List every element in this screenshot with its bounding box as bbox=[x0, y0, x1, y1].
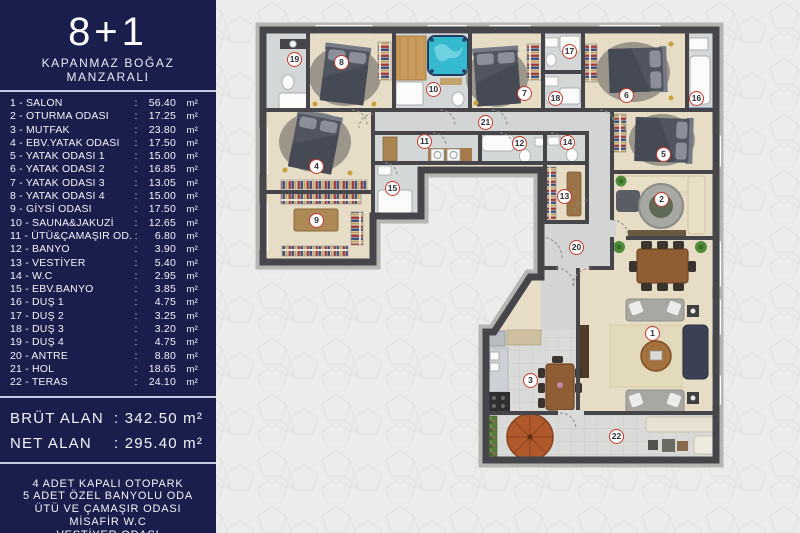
legend-area-value: 8.80 bbox=[140, 350, 176, 362]
legend-area-unit: m² bbox=[176, 271, 206, 283]
feature-text: ÜTÜ VE ÇAMAŞIR ODASI bbox=[35, 503, 182, 515]
legend-area-unit: m² bbox=[176, 258, 206, 270]
legend-row: 14 - W.C : 2.95 m² bbox=[10, 270, 206, 283]
legend-row: 2 - OTURMA ODASI : 17.25 m² bbox=[10, 110, 206, 123]
legend-area-value: 4.75 bbox=[140, 336, 176, 348]
legend-area-unit: m² bbox=[176, 138, 206, 150]
legend-colon: : bbox=[132, 296, 140, 308]
legend-row: 19 - DUŞ 4 : 4.75 m² bbox=[10, 336, 206, 349]
legend-area-unit: m² bbox=[176, 364, 206, 376]
legend-area-unit: m² bbox=[176, 337, 206, 349]
feature-text: 5 ADET ÖZEL BANYOLU ODA bbox=[23, 490, 193, 502]
legend-room-label: 18 - DUŞ 3 bbox=[10, 323, 132, 335]
legend-area-unit: m² bbox=[176, 297, 206, 309]
legend-area-unit: m² bbox=[176, 111, 206, 123]
legend-area-unit: m² bbox=[176, 204, 206, 216]
area-totals: BRÜT ALAN : 342.50 m² NET ALAN : 295.40 … bbox=[0, 398, 216, 456]
legend-colon: : bbox=[132, 137, 140, 149]
room-legend: 1 - SALON : 56.40 m² 2 - OTURMA ODASI : … bbox=[0, 92, 216, 390]
legend-colon: : bbox=[132, 203, 140, 215]
legend-colon: : bbox=[132, 283, 140, 295]
legend-colon: : bbox=[132, 217, 140, 229]
legend-colon: : bbox=[132, 270, 140, 282]
legend-colon: : bbox=[132, 177, 140, 189]
legend-room-label: 1 - SALON bbox=[10, 97, 132, 109]
legend-room-label: 14 - W.C bbox=[10, 270, 132, 282]
legend-area-value: 13.05 bbox=[140, 177, 176, 189]
legend-area-unit: m² bbox=[176, 125, 206, 137]
features-list: 4 ADET KAPALI OTOPARK 5 ADET ÖZEL BANYOL… bbox=[0, 478, 216, 533]
legend-area-unit: m² bbox=[176, 151, 206, 163]
feature-line: 5 ADET ÖZEL BANYOLU ODA bbox=[0, 490, 216, 503]
legend-colon: : bbox=[132, 323, 140, 335]
legend-row: 17 - DUŞ 2 : 3.25 m² bbox=[10, 310, 206, 323]
legend-row: 18 - DUŞ 3 : 3.20 m² bbox=[10, 323, 206, 336]
legend-row: 11 - ÜTÜ&ÇAMAŞIR OD. : 6.80 m² bbox=[10, 230, 206, 243]
feature-line: VESTİYER ODASI bbox=[0, 529, 216, 533]
legend-room-label: 10 - SAUNA&JAKUZİ bbox=[10, 217, 132, 229]
legend-area-unit: m² bbox=[176, 218, 206, 230]
legend-area-value: 15.00 bbox=[140, 150, 176, 162]
legend-area-unit: m² bbox=[176, 164, 206, 176]
brut-alan-label: BRÜT ALAN bbox=[10, 406, 114, 431]
net-alan-label: NET ALAN bbox=[10, 431, 114, 456]
legend-colon: : bbox=[132, 363, 140, 375]
legend-row: 4 - EBV.YATAK ODASI : 17.50 m² bbox=[10, 137, 206, 150]
legend-area-value: 17.50 bbox=[140, 203, 176, 215]
legend-room-label: 11 - ÜTÜ&ÇAMAŞIR OD. bbox=[10, 230, 132, 242]
legend-row: 5 - YATAK ODASI 1 : 15.00 m² bbox=[10, 150, 206, 163]
legend-area-value: 17.25 bbox=[140, 110, 176, 122]
legend-area-value: 18.65 bbox=[140, 363, 176, 375]
feature-line: MİSAFİR W.C bbox=[0, 516, 216, 529]
legend-colon: : bbox=[132, 230, 140, 242]
legend-area-value: 3.25 bbox=[140, 310, 176, 322]
legend-area-value: 3.20 bbox=[140, 323, 176, 335]
floor-antre bbox=[541, 222, 612, 268]
legend-room-label: 13 - VESTİYER bbox=[10, 257, 132, 269]
legend-area-value: 56.40 bbox=[140, 97, 176, 109]
feature-text: 4 ADET KAPALI OTOPARK bbox=[32, 478, 183, 490]
separator bbox=[0, 462, 216, 464]
legend-colon: : bbox=[132, 150, 140, 162]
legend-colon: : bbox=[132, 163, 140, 175]
legend-row: 12 - BANYO : 3.90 m² bbox=[10, 243, 206, 256]
legend-area-unit: m² bbox=[176, 377, 206, 389]
feature-line: 4 ADET KAPALI OTOPARK bbox=[0, 478, 216, 491]
legend-area-value: 4.75 bbox=[140, 296, 176, 308]
legend-row: 22 - TERAS : 24.10 m² bbox=[10, 376, 206, 389]
legend-area-value: 2.95 bbox=[140, 270, 176, 282]
legend-row: 15 - EBV.BANYO : 3.85 m² bbox=[10, 283, 206, 296]
legend-room-label: 15 - EBV.BANYO bbox=[10, 283, 132, 295]
legend-colon: : bbox=[132, 336, 140, 348]
legend-area-unit: m² bbox=[176, 284, 206, 296]
legend-room-label: 9 - GİYSİ ODASI bbox=[10, 203, 132, 215]
plan-subtitle: KAPANMAZ BOĞAZ MANZARALI bbox=[0, 56, 216, 84]
floor-kitchen-corridor bbox=[541, 268, 578, 330]
feature-text: MİSAFİR W.C bbox=[69, 516, 146, 528]
legend-area-unit: m² bbox=[176, 98, 206, 110]
antre-dining-opening bbox=[609, 220, 616, 237]
legend-room-label: 3 - MUTFAK bbox=[10, 124, 132, 136]
brut-alan-value: : 342.50 m² bbox=[114, 406, 206, 431]
feature-line: ÜTÜ VE ÇAMAŞIR ODASI bbox=[0, 503, 216, 516]
net-alan-row: NET ALAN : 295.40 m² bbox=[10, 431, 206, 456]
legend-colon: : bbox=[132, 310, 140, 322]
legend-area-value: 24.10 bbox=[140, 376, 176, 388]
legend-row: 1 - SALON : 56.40 m² bbox=[10, 97, 206, 110]
legend-area-unit: m² bbox=[176, 351, 206, 363]
legend-room-label: 22 - TERAS bbox=[10, 376, 132, 388]
legend-row: 9 - GİYSİ ODASI : 17.50 m² bbox=[10, 203, 206, 216]
fixtures-dus1 bbox=[688, 38, 712, 112]
floor-hol bbox=[373, 110, 612, 133]
legend-colon: : bbox=[132, 97, 140, 109]
legend-area-value: 3.90 bbox=[140, 243, 176, 255]
legend-area-value: 23.80 bbox=[140, 124, 176, 136]
info-sidebar: 8+1 KAPANMAZ BOĞAZ MANZARALI 1 - SALON :… bbox=[0, 0, 216, 533]
legend-area-unit: m² bbox=[176, 231, 206, 243]
legend-colon: : bbox=[132, 350, 140, 362]
legend-area-unit: m² bbox=[176, 178, 206, 190]
legend-area-value: 17.50 bbox=[140, 137, 176, 149]
legend-row: 7 - YATAK ODASI 3 : 13.05 m² bbox=[10, 177, 206, 190]
legend-room-label: 4 - EBV.YATAK ODASI bbox=[10, 137, 132, 149]
legend-colon: : bbox=[132, 257, 140, 269]
legend-colon: : bbox=[132, 110, 140, 122]
legend-row: 6 - YATAK ODASI 2 : 16.85 m² bbox=[10, 163, 206, 176]
legend-area-value: 15.00 bbox=[140, 190, 176, 202]
legend-area-value: 3.85 bbox=[140, 283, 176, 295]
legend-colon: : bbox=[132, 124, 140, 136]
legend-room-label: 2 - OTURMA ODASI bbox=[10, 110, 132, 122]
legend-colon: : bbox=[132, 376, 140, 388]
brut-alan-row: BRÜT ALAN : 342.50 m² bbox=[10, 406, 206, 431]
legend-row: 8 - YATAK ODASI 4 : 15.00 m² bbox=[10, 190, 206, 203]
legend-room-label: 20 - ANTRE bbox=[10, 350, 132, 362]
plan-type-title: 8+1 bbox=[0, 10, 216, 55]
legend-room-label: 12 - BANYO bbox=[10, 243, 132, 255]
legend-row: 20 - ANTRE : 8.80 m² bbox=[10, 350, 206, 363]
page: 1 2 3 4 5 6 7 bbox=[0, 0, 800, 533]
legend-area-unit: m² bbox=[176, 324, 206, 336]
legend-area-value: 5.40 bbox=[140, 257, 176, 269]
legend-area-unit: m² bbox=[176, 244, 206, 256]
legend-row: 21 - HOL : 18.65 m² bbox=[10, 363, 206, 376]
legend-room-label: 21 - HOL bbox=[10, 363, 132, 375]
legend-area-value: 12.65 bbox=[140, 217, 176, 229]
legend-row: 10 - SAUNA&JAKUZİ : 12.65 m² bbox=[10, 217, 206, 230]
legend-row: 3 - MUTFAK : 23.80 m² bbox=[10, 124, 206, 137]
legend-room-label: 16 - DUŞ 1 bbox=[10, 296, 132, 308]
legend-colon: : bbox=[132, 243, 140, 255]
net-alan-value: : 295.40 m² bbox=[114, 431, 206, 456]
legend-area-value: 6.80 bbox=[140, 230, 176, 242]
legend-room-label: 5 - YATAK ODASI 1 bbox=[10, 150, 132, 162]
legend-area-unit: m² bbox=[176, 191, 206, 203]
legend-room-label: 8 - YATAK ODASI 4 bbox=[10, 190, 132, 202]
legend-room-label: 19 - DUŞ 4 bbox=[10, 336, 132, 348]
legend-colon: : bbox=[132, 190, 140, 202]
legend-room-label: 7 - YATAK ODASI 3 bbox=[10, 177, 132, 189]
legend-row: 16 - DUŞ 1 : 4.75 m² bbox=[10, 296, 206, 309]
legend-row: 13 - VESTİYER : 5.40 m² bbox=[10, 257, 206, 270]
legend-room-label: 17 - DUŞ 2 bbox=[10, 310, 132, 322]
feature-text: VESTİYER ODASI bbox=[57, 529, 160, 533]
legend-area-unit: m² bbox=[176, 311, 206, 323]
legend-room-label: 6 - YATAK ODASI 2 bbox=[10, 163, 132, 175]
legend-area-value: 16.85 bbox=[140, 163, 176, 175]
